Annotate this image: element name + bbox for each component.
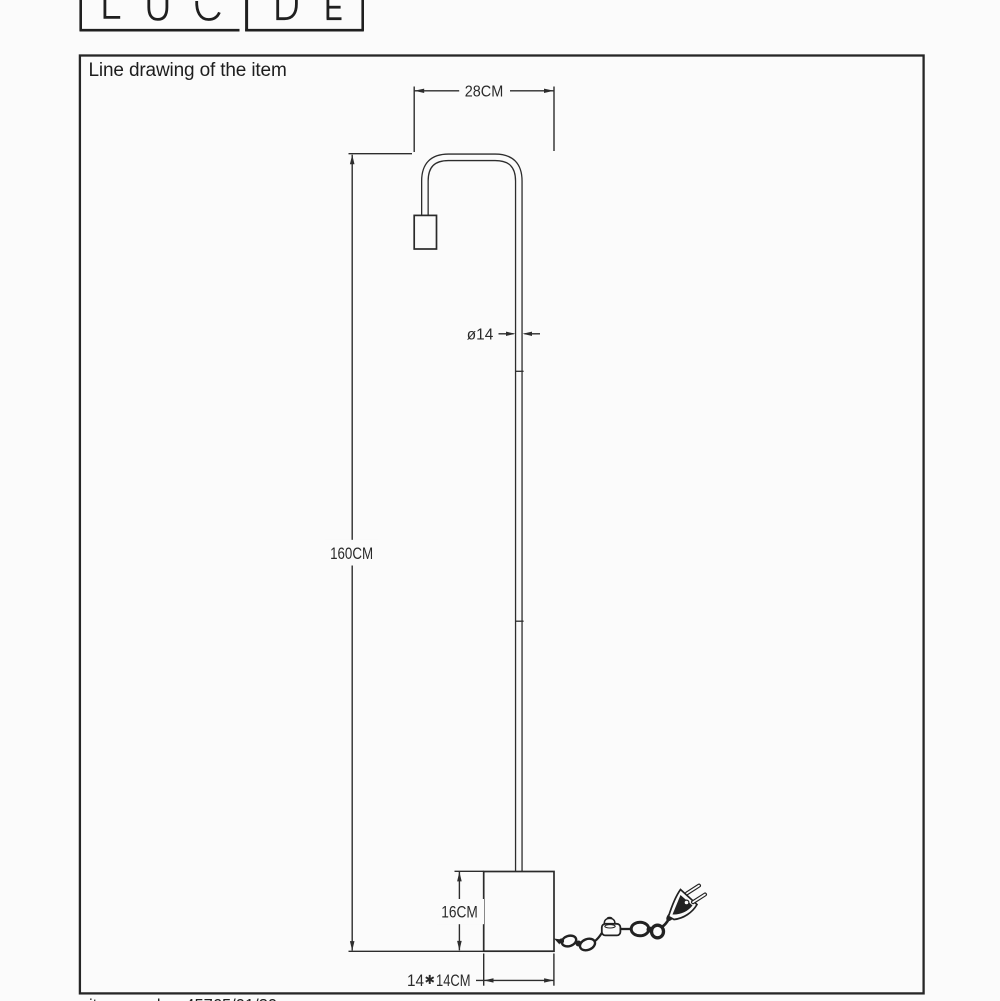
svg-text:14CM: 14CM — [436, 972, 471, 990]
svg-text:28CM: 28CM — [465, 83, 504, 100]
svg-text:item number 45765/01/30: item number 45765/01/30 — [89, 996, 277, 1001]
svg-text:Line drawing of the item: Line drawing of the item — [89, 60, 287, 81]
svg-text:160CM: 160CM — [330, 544, 373, 563]
svg-text:ø14: ø14 — [467, 327, 494, 344]
svg-text:✱: ✱ — [424, 973, 435, 987]
svg-text:16CM: 16CM — [441, 903, 478, 921]
svg-text:14: 14 — [407, 972, 424, 990]
